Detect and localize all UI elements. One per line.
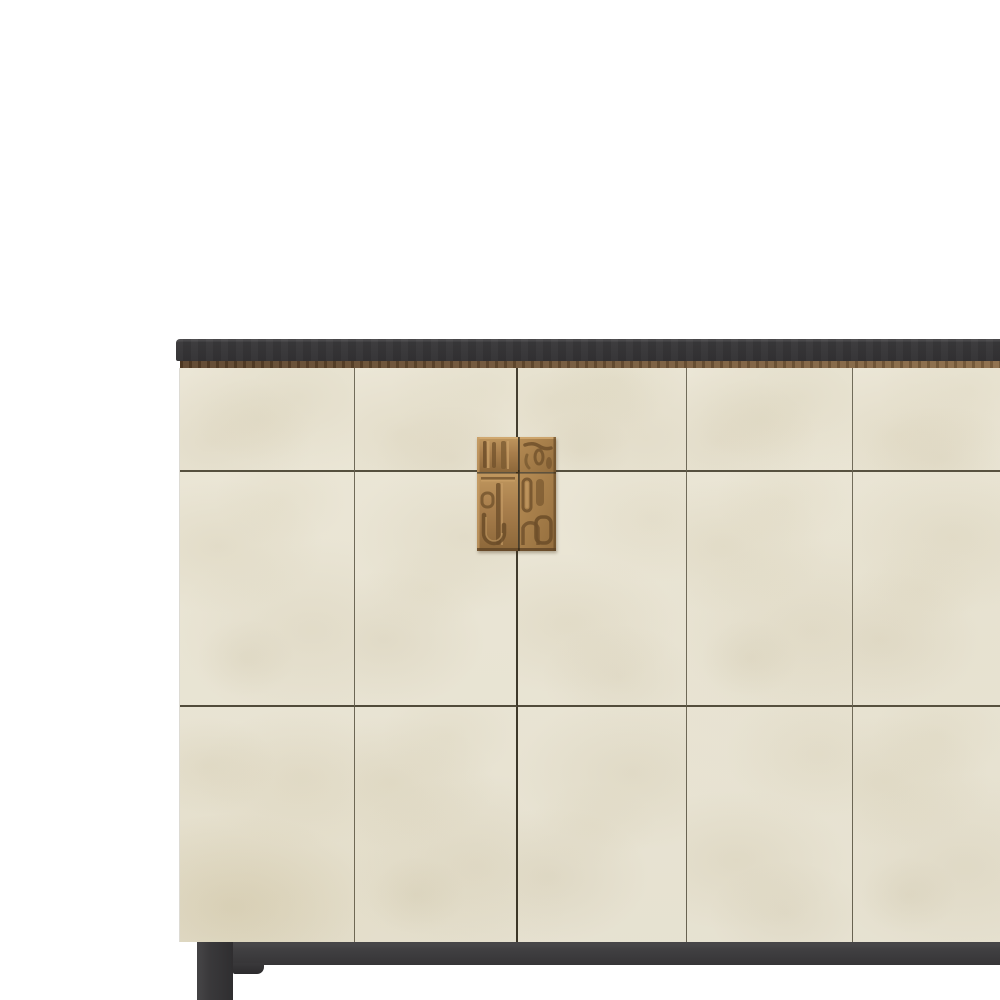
door-panel <box>180 707 355 942</box>
door-panel <box>687 472 853 707</box>
door-panel <box>355 707 518 942</box>
door-panel <box>853 472 1000 707</box>
front-left-leg <box>197 942 233 1000</box>
cabinet-body <box>180 368 1000 942</box>
cabinet-top-slab <box>176 339 1000 361</box>
drawer-front <box>687 368 853 472</box>
product-image <box>0 0 1000 1000</box>
leg-bracket <box>233 963 264 974</box>
door-panel <box>853 707 1000 942</box>
drawer-front <box>180 368 355 472</box>
wood-trim-strip <box>180 361 1000 368</box>
bronze-carved-handle <box>477 437 556 551</box>
door-panel <box>518 707 687 942</box>
base-rail <box>197 942 1000 965</box>
drawer-front <box>853 368 1000 472</box>
door-panel <box>687 707 853 942</box>
door-panel <box>180 472 355 707</box>
